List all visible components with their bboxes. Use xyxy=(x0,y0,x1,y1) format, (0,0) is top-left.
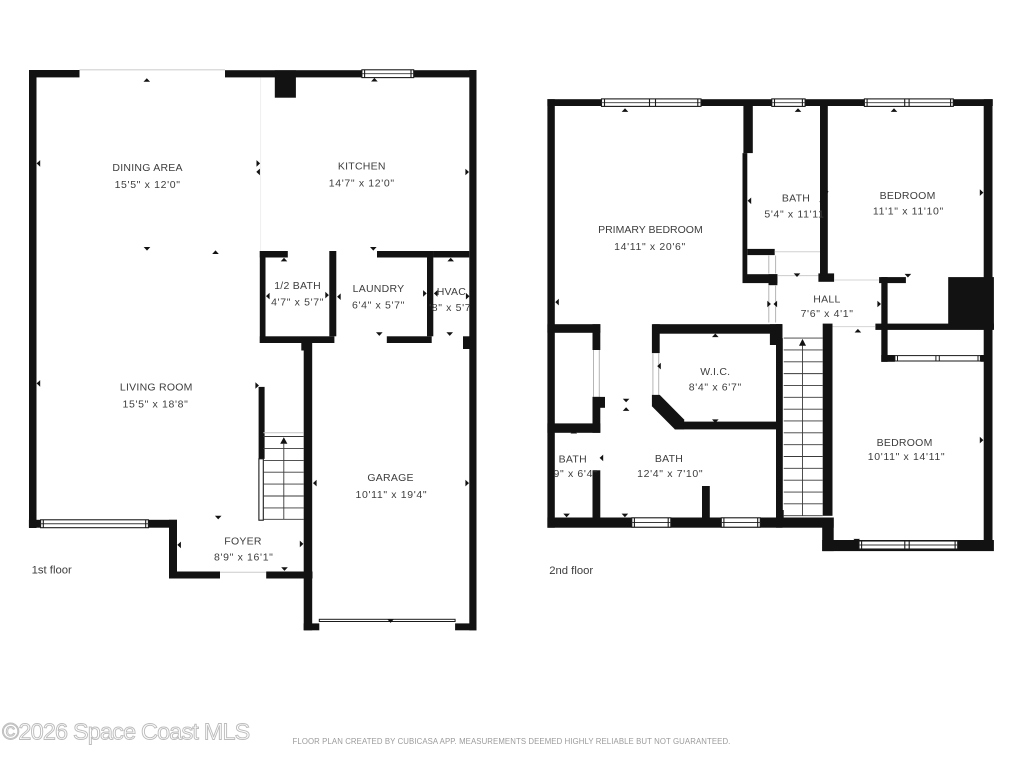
svg-text:1/2 BATH: 1/2 BATH xyxy=(274,280,321,292)
svg-text:BATH: BATH xyxy=(559,453,587,465)
svg-text:11'1" x 11'10": 11'1" x 11'10" xyxy=(873,205,944,217)
svg-text:LAUNDRY: LAUNDRY xyxy=(353,283,405,295)
svg-text:5'4" x 11'11: 5'4" x 11'11 xyxy=(764,209,824,221)
svg-text:'8" x 5'7: '8" x 5'7 xyxy=(429,302,471,314)
svg-text:12'4" x 7'10": 12'4" x 7'10" xyxy=(637,468,703,480)
svg-text:14'7" x 12'0": 14'7" x 12'0" xyxy=(329,178,395,190)
svg-text:10'11" x 14'11": 10'11" x 14'11" xyxy=(868,451,945,463)
svg-text:6'4" x 5'7": 6'4" x 5'7" xyxy=(352,300,405,312)
svg-text:1st floor: 1st floor xyxy=(32,565,72,577)
svg-text:BATH: BATH xyxy=(782,193,810,205)
svg-text:FOYER: FOYER xyxy=(224,536,262,548)
svg-text:GARAGE: GARAGE xyxy=(367,472,413,484)
svg-text:BEDROOM: BEDROOM xyxy=(880,190,936,202)
svg-text:©2026 Space Coast MLS: ©2026 Space Coast MLS xyxy=(2,719,250,745)
svg-text:W.I.C.: W.I.C. xyxy=(700,366,730,378)
svg-text:10'11" x 19'4": 10'11" x 19'4" xyxy=(356,489,428,501)
svg-text:HVAC: HVAC xyxy=(437,286,467,298)
svg-text:HALL: HALL xyxy=(813,293,840,305)
svg-text:BATH: BATH xyxy=(655,453,683,465)
svg-text:BEDROOM: BEDROOM xyxy=(877,437,933,449)
svg-text:8'9" x 16'1": 8'9" x 16'1" xyxy=(214,551,274,563)
svg-text:FLOOR PLAN CREATED BY CUBICASA: FLOOR PLAN CREATED BY CUBICASA APP. MEAS… xyxy=(293,737,731,746)
svg-text:9" x 6'4": 9" x 6'4" xyxy=(554,468,598,480)
svg-text:DINING AREA: DINING AREA xyxy=(112,162,182,174)
svg-text:PRIMARY BEDROOM: PRIMARY BEDROOM xyxy=(598,224,703,236)
svg-text:14'11" x 20'6": 14'11" x 20'6" xyxy=(614,241,686,253)
svg-text:4'7" x 5'7": 4'7" x 5'7" xyxy=(271,296,324,308)
svg-text:15'5" x 18'8": 15'5" x 18'8" xyxy=(122,399,188,411)
svg-text:2nd floor: 2nd floor xyxy=(549,565,593,577)
svg-text:7'6" x 4'1": 7'6" x 4'1" xyxy=(801,308,854,320)
svg-text:KITCHEN: KITCHEN xyxy=(338,161,386,173)
svg-text:15'5" x 12'0": 15'5" x 12'0" xyxy=(115,179,181,191)
svg-text:8'4" x 6'7": 8'4" x 6'7" xyxy=(689,381,742,393)
svg-text:LIVING ROOM: LIVING ROOM xyxy=(120,382,193,394)
